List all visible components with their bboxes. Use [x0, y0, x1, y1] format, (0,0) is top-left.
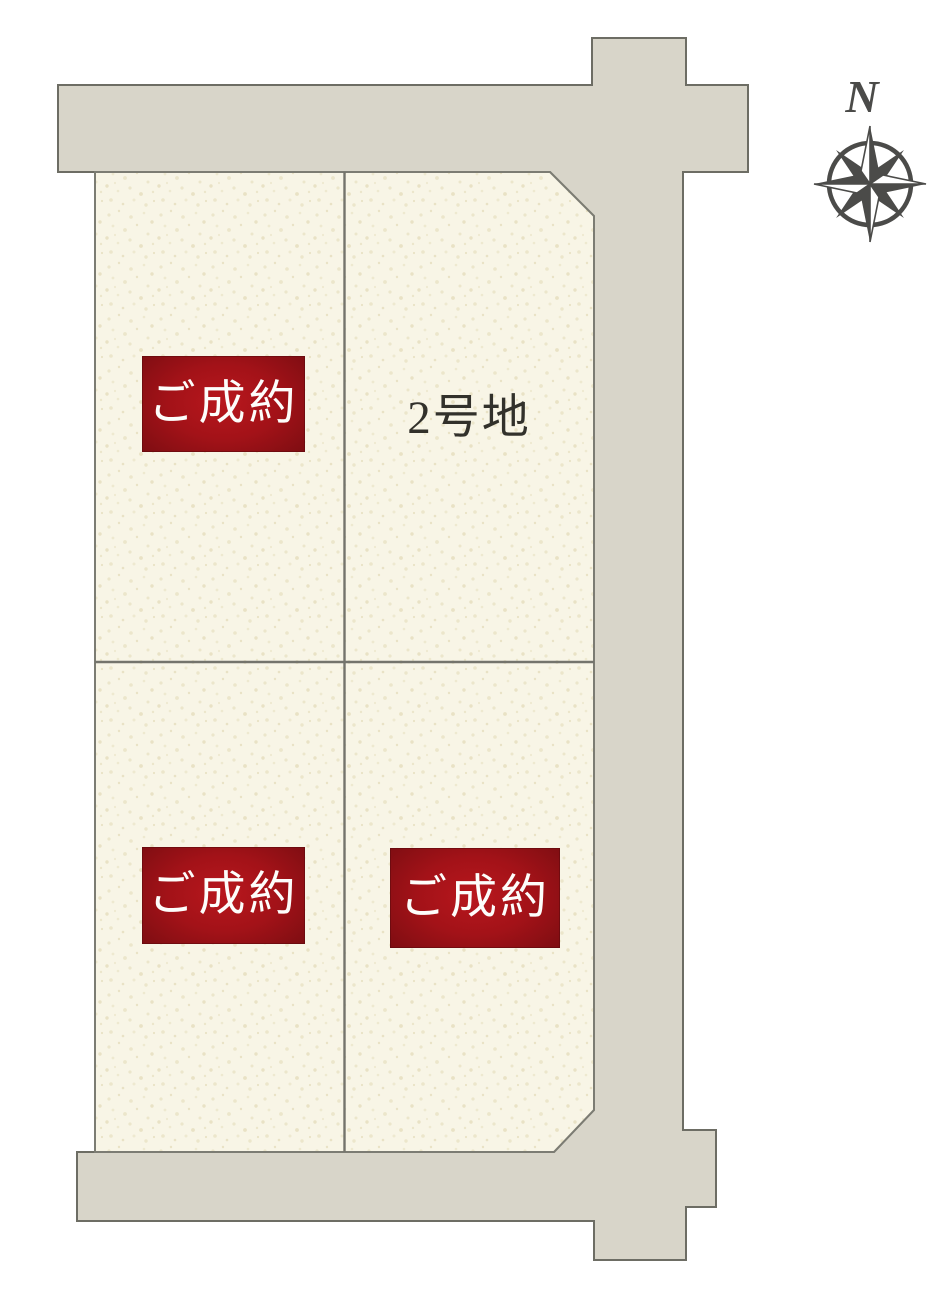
site-plan-drawing — [0, 0, 950, 1313]
compass-rose-icon — [814, 126, 926, 242]
site-plan: N ご成約 2号地 ご成約 ご成約 — [0, 0, 950, 1313]
